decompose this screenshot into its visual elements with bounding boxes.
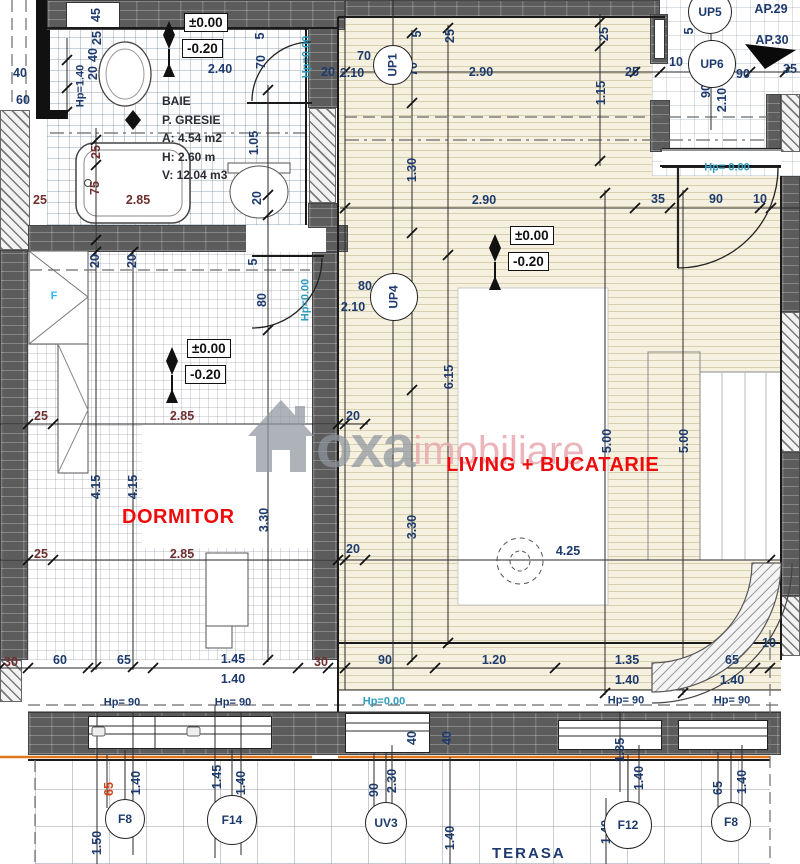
dimension-label: 20 (89, 254, 102, 268)
dimension-label: 40 (87, 48, 100, 62)
terrace-label: TERASA (492, 845, 566, 862)
reference-circle-text: F8 (118, 812, 132, 826)
dimension-label: 1.05 (248, 131, 261, 155)
dimension-label: 90 (736, 68, 750, 81)
dimension-label: 40 (441, 731, 454, 745)
reference-circle: F14 (207, 795, 257, 845)
dimension-label: 60 (16, 94, 30, 107)
reference-circle: UP1 (373, 45, 413, 85)
dimension-label: 40 (406, 731, 419, 745)
dimension-label: 3.30 (258, 508, 271, 532)
parapet-height-label: Hp= 0.00 (704, 163, 750, 174)
level-lower: -0.20 (182, 39, 223, 58)
room-height: H: 2.60 m (162, 148, 227, 167)
parapet-height-label: Hp=0.00 (301, 279, 312, 322)
dimension-label: 1.40 (633, 766, 646, 790)
dimension-label: 60 (53, 654, 67, 667)
dimension-label: 25 (90, 145, 103, 159)
dimension-label: 2.30 (386, 769, 399, 793)
dimension-label: 2.85 (170, 410, 194, 423)
dimension-label: 90 (709, 193, 723, 206)
parapet-height-label: Hp=1.40 (76, 65, 87, 108)
wardrobe-mark: F (51, 290, 58, 302)
dimension-label: 5 (254, 33, 267, 40)
reference-circle-text: F14 (222, 813, 243, 827)
dimension-label: 2.90 (472, 194, 496, 207)
dimension-label: 2.10 (340, 67, 364, 80)
dimension-label: 1.20 (482, 654, 506, 667)
dimension-label: 20 (321, 66, 335, 79)
dimension-label: 1.15 (595, 81, 608, 105)
dimension-label: 20 (251, 191, 264, 205)
dimension-label: 6.15 (443, 365, 456, 389)
room-finish: P. GRESIE (162, 111, 227, 130)
dimension-label: 5 (411, 31, 424, 38)
dimension-label: 90 (368, 783, 381, 797)
dimension-label: 75 (89, 181, 102, 195)
dimension-label: 1.40 (615, 674, 639, 687)
dimension-label: 1.45 (221, 653, 245, 666)
dimension-label: 2.85 (170, 548, 194, 561)
dimension-label: 5.00 (678, 429, 691, 453)
dimension-label: 65 (725, 654, 739, 667)
dimension-label: 1.35 (614, 738, 627, 762)
parapet-height-label: Hp=0.00 (302, 36, 313, 79)
dimension-label: 1.35 (615, 654, 639, 667)
apartment-label: AP.29 (754, 3, 787, 16)
parapet-height-label: Hp= 90 (608, 696, 644, 707)
floor-plan: oxa imobiliare 4060452540202.402.8575252… (0, 0, 800, 864)
room-area: A: 4.54 m2 (162, 129, 227, 148)
parapet-height-label: Hp=0.00 (363, 697, 406, 708)
dimension-label: 1.40 (720, 674, 744, 687)
parapet-height-label: Hp= 90 (714, 696, 750, 707)
dimension-label: 20 (126, 254, 139, 268)
dimension-label: 65 (117, 654, 131, 667)
level-marker: ±0.00 -0.20 (160, 13, 228, 58)
reference-circle-text: F12 (618, 818, 639, 832)
dimension-label: 25 (625, 66, 639, 79)
dimension-label: 2.10 (341, 301, 365, 314)
dimension-label: 25 (34, 410, 48, 423)
level-symbol-icon (160, 21, 178, 79)
dimension-label: 1.40 (130, 771, 143, 795)
level-marker: ±0.00 -0.20 (486, 226, 554, 271)
dimension-label: 4.25 (556, 545, 580, 558)
level-lower: -0.20 (185, 365, 226, 384)
dimension-label: 45 (90, 8, 103, 22)
dimension-label: 30 (314, 656, 328, 669)
dimension-label: 90 (378, 654, 392, 667)
reference-circle-text: F8 (724, 815, 738, 829)
dimension-label: 4.15 (90, 475, 103, 499)
level-marker: ±0.00 -0.20 (163, 339, 231, 384)
level-upper: ±0.00 (184, 13, 228, 32)
level-upper: ±0.00 (187, 339, 231, 358)
dimension-label: 80 (256, 293, 269, 307)
dimension-label: 10 (753, 193, 767, 206)
dimension-label: 1.30 (406, 158, 419, 182)
reference-circle: F8 (711, 802, 751, 842)
dimension-label: 1.40 (221, 673, 245, 686)
dimension-label: 25 (91, 31, 104, 45)
dimension-label: 65 (103, 782, 116, 796)
bathroom-info: BAIE P. GRESIE A: 4.54 m2 H: 2.60 m V: 1… (162, 92, 227, 185)
reference-circle-text: UP4 (387, 285, 401, 308)
dimension-label: 2.85 (126, 194, 150, 207)
dimension-label: 3.30 (406, 515, 419, 539)
annotation-layer: 4060452540202.402.857525251.0520570202.1… (0, 0, 800, 864)
reference-circle: UP4 (370, 273, 418, 321)
level-upper: ±0.00 (510, 226, 554, 245)
dimension-label: 20 (346, 410, 360, 423)
dimension-label: 70 (357, 50, 371, 63)
dimension-label: 1.45 (211, 765, 224, 789)
room-volume: V: 12.04 m3 (162, 166, 227, 185)
reference-circle: F12 (604, 801, 652, 849)
dimension-label: 5 (247, 259, 260, 266)
dimension-label: 2.10 (716, 88, 729, 112)
dimension-label: 25 (598, 27, 611, 41)
dimension-label: 4.15 (127, 475, 140, 499)
dimension-label: 1.50 (91, 831, 104, 855)
dimension-label: 30 (4, 656, 18, 669)
parapet-height-label: Hp= 90 (215, 698, 251, 709)
dimension-label: 20 (346, 543, 360, 556)
dimension-label: 25 (33, 194, 47, 207)
reference-circle: F8 (105, 799, 145, 839)
dimension-label: 65 (712, 781, 725, 795)
bedroom-label: DORMITOR (122, 506, 235, 529)
reference-circle: UP6 (688, 40, 736, 88)
reference-circle-text: UV3 (374, 816, 397, 830)
reference-circle-text: UP6 (700, 57, 723, 71)
dimension-label: 25 (444, 29, 457, 43)
room-name: BAIE (162, 92, 227, 111)
dimension-label: 2.40 (208, 63, 232, 76)
dimension-label: 20 (87, 66, 100, 80)
dimension-label: 70 (255, 55, 268, 69)
level-lower: -0.20 (508, 252, 549, 271)
dimension-label: 25 (34, 548, 48, 561)
dimension-label: 10 (762, 637, 776, 650)
dimension-label: 1.40 (235, 771, 248, 795)
dimension-label: 40 (13, 67, 27, 80)
parapet-height-label: Hp= 90 (104, 698, 140, 709)
apartment-label: AP.30 (755, 34, 788, 47)
dimension-label: 5.00 (601, 429, 614, 453)
living-label: LIVING + BUCATARIE (446, 454, 659, 477)
dimension-label: 2.90 (469, 66, 493, 79)
dimension-label: 10 (669, 56, 683, 69)
dimension-label: 35 (651, 193, 665, 206)
dimension-label: 1.40 (736, 770, 749, 794)
reference-circle: UV3 (365, 802, 407, 844)
level-symbol-icon (163, 347, 181, 405)
reference-circle-text: UP5 (698, 5, 721, 19)
dimension-label: 1.40 (444, 826, 457, 850)
level-symbol-icon (486, 234, 504, 292)
reference-circle-text: UP1 (386, 53, 400, 76)
dimension-label: 35 (783, 63, 797, 76)
dimension-label: 5 (683, 28, 696, 35)
